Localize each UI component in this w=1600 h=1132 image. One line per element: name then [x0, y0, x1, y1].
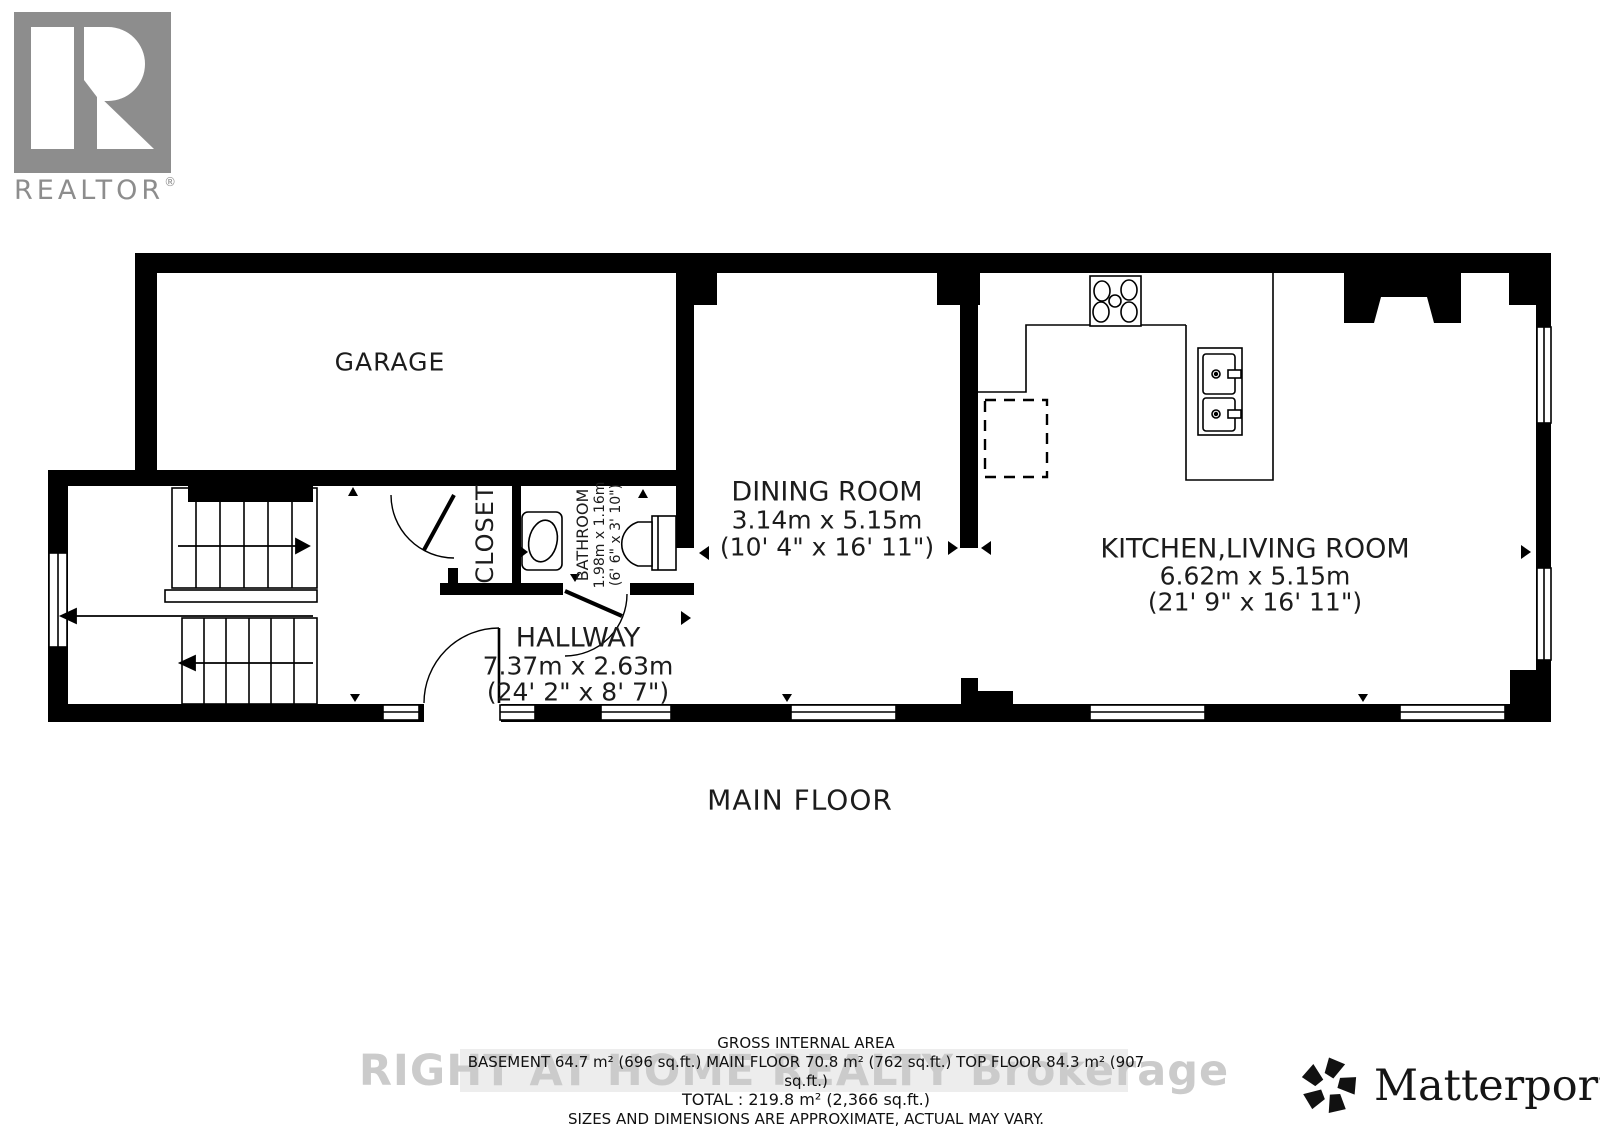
- stairs-handrail: [165, 590, 317, 602]
- floorplan-page: REALTOR®: [0, 0, 1600, 1132]
- window-bottom-5: [1090, 705, 1205, 720]
- wall-closet-bath-divider: [512, 486, 521, 583]
- staircase: [165, 488, 317, 704]
- fireplace-icon: [1344, 273, 1461, 323]
- dining-room-label: DINING ROOM: [731, 477, 922, 508]
- hallway-dim-metric: 7.37m x 2.63m: [483, 652, 674, 681]
- window-right-1: [1537, 327, 1551, 423]
- wall-stub-dining-nw: [685, 273, 717, 305]
- kitchen-sink-icon: [1198, 348, 1242, 435]
- matterport-logo: Matterport®: [1298, 1050, 1600, 1122]
- area-summary-total: TOTAL : 219.8 m² (2,366 sq.ft.): [406, 1090, 1206, 1110]
- marker-right-icon: [681, 611, 691, 625]
- wall-hall-living-stub: [961, 678, 1013, 704]
- window-bottom-1: [383, 705, 419, 720]
- hallway-dim-imperial: (24' 2" x 8' 7"): [487, 678, 669, 707]
- dining-room-dim-metric: 3.14m x 5.15m: [732, 506, 923, 535]
- floor-title: MAIN FLOOR: [707, 784, 893, 817]
- bathroom-dim-imperial: (6' 6" x 3' 10"): [608, 482, 624, 589]
- toilet-icon: [622, 516, 676, 570]
- window-bottom-3: [601, 705, 671, 720]
- matterport-wordmark: Matterport®: [1374, 1061, 1600, 1111]
- window-left: [49, 553, 67, 647]
- floorplan-drawing: [0, 0, 1600, 1132]
- marker-up-icon: [348, 487, 358, 496]
- wall-dining-kitchen: [960, 273, 978, 548]
- area-summary-disclaimer: SIZES AND DIMENSIONS ARE APPROXIMATE, AC…: [406, 1110, 1206, 1129]
- window-right-2: [1537, 568, 1551, 660]
- appliance-space-dashed: [985, 400, 1047, 477]
- marker-left-icon: [699, 546, 709, 560]
- wall-bath-bottom-left: [440, 583, 563, 595]
- marker-left-icon: [981, 541, 991, 555]
- wall-dining-left: [676, 273, 694, 548]
- closet-door: [391, 495, 454, 558]
- area-summary-breakdown: BASEMENT 64.7 m² (696 sq.ft.) MAIN FLOOR…: [406, 1053, 1206, 1072]
- marker-right-icon: [948, 541, 958, 555]
- stairs-overhead-wall: [188, 485, 313, 502]
- closet-label: CLOSET: [471, 484, 499, 583]
- wall-top: [135, 253, 1551, 273]
- kitchen-living-label: KITCHEN,LIVING ROOM: [1100, 534, 1409, 565]
- wall-bath-bottom-right: [630, 583, 694, 595]
- marker-down-icon: [782, 694, 792, 702]
- wall-closet-left-stub: [448, 568, 458, 595]
- kitchen-living-dim-metric: 6.62m x 5.15m: [1160, 562, 1351, 591]
- window-bottom-2: [500, 705, 535, 720]
- wall-corner-se: [1510, 670, 1551, 706]
- marker-down-icon: [1358, 694, 1368, 702]
- area-summary-title: GROSS INTERNAL AREA: [406, 1034, 1206, 1053]
- bathroom-label-block: BATHROOM 1.98m x 1.16m (6' 6" x 3' 10"): [574, 482, 624, 589]
- area-summary: GROSS INTERNAL AREA BASEMENT 64.7 m² (69…: [406, 1034, 1206, 1129]
- window-bottom-4: [791, 705, 896, 720]
- wall-corner-ne: [1509, 273, 1544, 305]
- hallway-label: HALLWAY: [516, 623, 640, 654]
- bathroom-dim-metric: 1.98m x 1.16m: [592, 482, 608, 589]
- bathroom-sink-icon: [520, 512, 562, 570]
- kitchen-living-dim-imperial: (21' 9" x 16' 11"): [1148, 588, 1362, 617]
- stove-icon: [1090, 276, 1141, 326]
- marker-down-icon: [350, 694, 360, 702]
- bathroom-label: BATHROOM: [574, 482, 592, 589]
- area-summary-breakdown-cont: sq.ft.): [406, 1072, 1206, 1090]
- window-bottom-6: [1400, 705, 1505, 720]
- dining-room-dim-imperial: (10' 4" x 16' 11"): [720, 533, 934, 562]
- matterport-pinwheel-icon: [1298, 1055, 1360, 1117]
- garage-label: GARAGE: [335, 348, 446, 377]
- marker-right-icon: [1521, 545, 1531, 559]
- wall-garage-left: [135, 253, 157, 486]
- marker-up-icon: [638, 489, 648, 498]
